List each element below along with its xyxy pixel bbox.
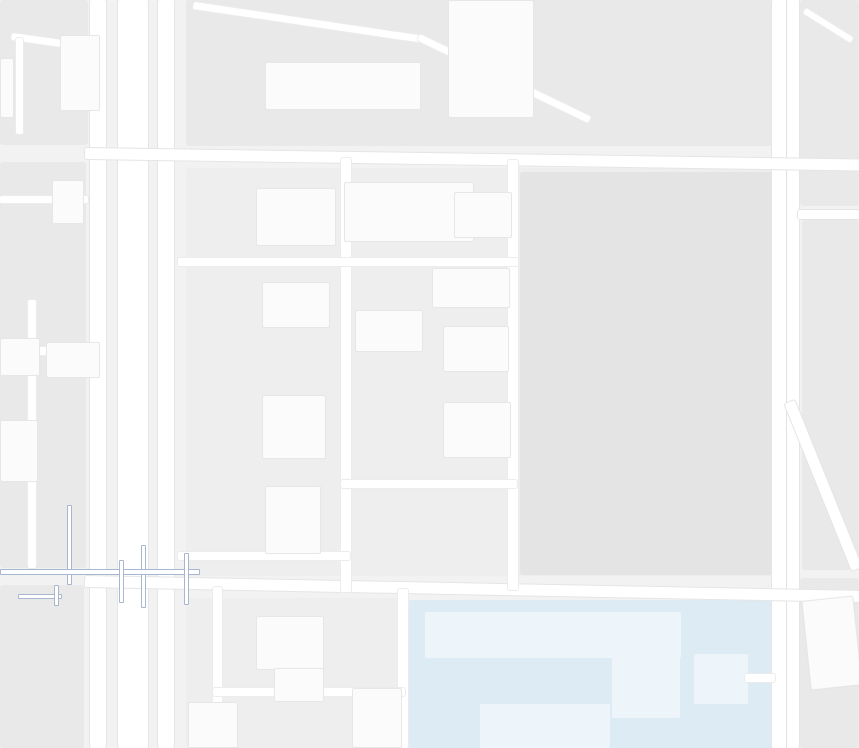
campus-building: [612, 640, 680, 718]
overpass-line: [119, 560, 124, 603]
overpass-line: [54, 585, 59, 606]
building: [262, 395, 326, 459]
road-segment: [118, 0, 148, 748]
building: [0, 420, 38, 482]
campus-building: [480, 704, 610, 748]
road-segment: [178, 552, 350, 560]
building: [448, 0, 534, 118]
road-segment: [798, 210, 859, 219]
building: [352, 688, 402, 748]
building: [52, 180, 84, 224]
building: [256, 188, 336, 246]
building: [443, 402, 511, 458]
city-block: [0, 585, 84, 748]
building: [355, 310, 423, 352]
overpass-line: [184, 553, 189, 605]
building: [274, 668, 324, 702]
building: [432, 268, 510, 308]
road-segment: [178, 258, 518, 266]
road-segment: [158, 0, 174, 748]
campus-building: [694, 654, 748, 704]
overpass-line: [0, 569, 200, 575]
building: [443, 326, 509, 372]
building: [60, 35, 100, 111]
road-segment: [745, 674, 775, 682]
city-block: [800, 0, 859, 206]
map-canvas[interactable]: [0, 0, 859, 748]
building: [262, 282, 330, 328]
building: [256, 616, 324, 670]
building: [801, 596, 859, 691]
road-segment: [772, 0, 799, 748]
building: [0, 58, 14, 118]
road-segment: [16, 38, 23, 134]
road-divider: [786, 0, 787, 748]
building: [0, 338, 40, 376]
building: [46, 342, 100, 378]
road-segment: [341, 480, 517, 488]
building: [188, 702, 238, 748]
overpass-line: [141, 545, 146, 608]
building: [454, 192, 512, 238]
building: [265, 62, 421, 110]
building: [265, 486, 321, 554]
city-block: [520, 172, 772, 575]
